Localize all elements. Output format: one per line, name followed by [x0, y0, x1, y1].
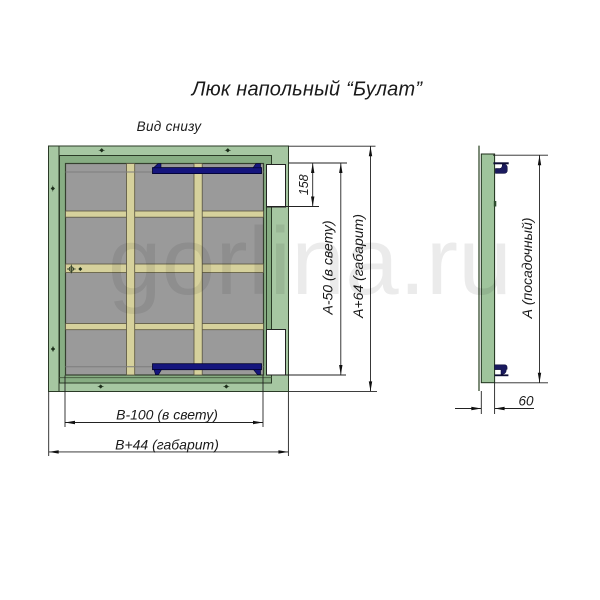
svg-text:60: 60 — [518, 394, 534, 409]
svg-text:Люк напольный “Булат”: Люк напольный “Булат” — [190, 79, 424, 101]
svg-text:В-100 (в свету): В-100 (в свету) — [116, 407, 218, 423]
svg-text:gorlina.ru: gorlina.ru — [108, 208, 512, 315]
svg-text:158: 158 — [297, 174, 311, 195]
svg-text:А (посадочный): А (посадочный) — [519, 218, 535, 320]
svg-text:В+44 (габарит): В+44 (габарит) — [115, 437, 219, 453]
svg-text:Вид снизу: Вид снизу — [137, 119, 203, 134]
